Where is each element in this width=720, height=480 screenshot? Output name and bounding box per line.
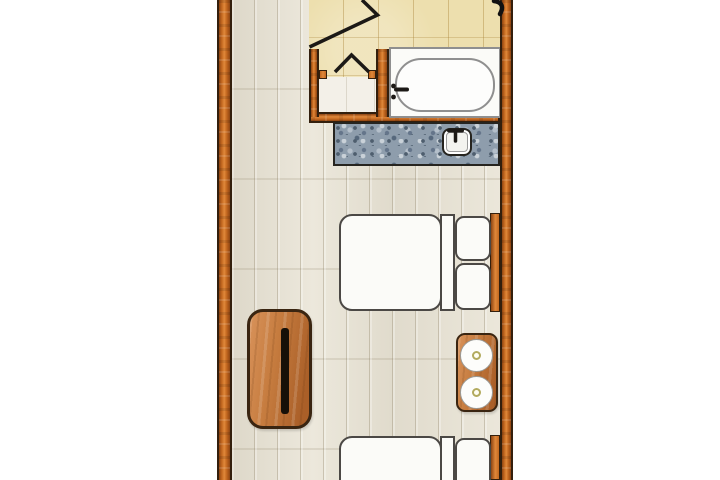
sink-basin: [442, 128, 472, 156]
bed2-sheet-fold: [440, 436, 455, 480]
tub-partition-wall: [376, 49, 389, 117]
lamp-finial-icon: [472, 388, 481, 397]
bed1-blanket: [339, 214, 442, 311]
bed2-pillow: [455, 438, 491, 480]
closet-door-jamb-left: [319, 70, 327, 79]
bed2-blanket: [339, 436, 442, 480]
floor-plan-canvas: [0, 0, 720, 480]
table-lamp-top: [460, 339, 493, 372]
vanity-counter: [333, 122, 500, 166]
dresser-handle-slot: [281, 328, 289, 414]
bed1-headboard: [490, 213, 500, 312]
bed1-pillow-bottom: [455, 263, 491, 310]
closet-left-wall: [309, 49, 319, 117]
bathtub-basin: [395, 58, 495, 112]
dresser: [247, 309, 312, 429]
closet-floor: [319, 77, 376, 112]
bed2-headboard: [490, 435, 500, 480]
left-exterior-wall: [217, 0, 232, 480]
bed1-pillow-top: [455, 216, 491, 261]
lamp-finial-icon: [472, 351, 481, 360]
closet-door-jamb-right: [368, 70, 376, 79]
bed1-sheet-fold: [440, 214, 455, 311]
table-lamp-bottom: [460, 376, 493, 409]
right-exterior-wall: [500, 0, 513, 480]
